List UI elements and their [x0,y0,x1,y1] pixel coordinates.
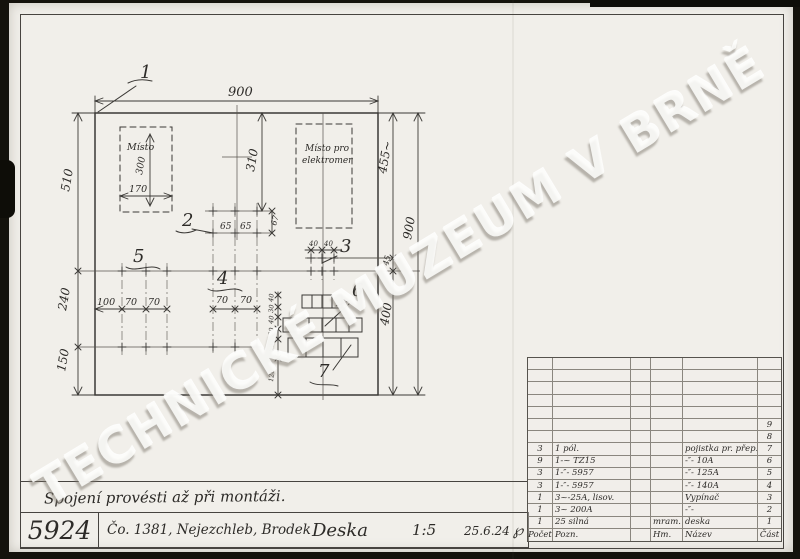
scanned-technical-drawing: { "watermark": "TECHNICKÉ MUZEUM V BRNĚ"… [0,0,800,559]
part-label-1: 1 [140,62,151,83]
dim-g5-70b: 70 [148,297,160,308]
dim-right-900: 900 [400,215,418,240]
drawing-scale: 1:5 [412,521,464,539]
dim-g5-100: 100 [97,297,115,308]
dim-g2-65b: 65 [240,222,252,232]
dim-vchain-60: 60 [267,343,276,352]
dim-misto-300: 300 [134,156,148,176]
title-block: 5924 Čo. 1381, Nejezchleb, Brodek Deska … [20,512,529,548]
table-row: 31 pól.pojistka pr. přep.7 [528,443,781,455]
part-label-4: 4 [216,268,228,289]
terminal-strips [283,295,362,357]
dim-vchain-30a: 30 [267,304,276,313]
order-info: Čo. 1381, Nejezchleb, Brodek [99,522,312,538]
table-row: 125 silnámram.deska1 [528,517,781,529]
drawing-number: 5924 [21,513,99,547]
elektromer-text: elektromer [302,156,353,166]
dim-g5-70a: 70 [125,297,137,308]
misto-pro-text: Místo pro [304,143,350,154]
table-row: 8 [528,431,781,443]
dim-g2-65a: 65 [220,222,232,232]
part-label-5: 5 [133,246,144,267]
dim-vchain-30b: 30 [267,327,276,336]
table-row: 13~-25A, lisov.Vypínač3 [528,492,781,504]
dim-g3-40a: 40 [308,240,318,248]
dim-vchain-120: 120 [267,369,276,382]
elektromer-area-box [296,124,352,228]
dim-left-240: 240 [55,286,73,312]
dim-right-400: 400 [377,301,395,327]
part-label-3: 3 [340,236,351,257]
table-row: 31-″- 5957-″- 140A4 [528,480,781,492]
dim-g3-40b: 40 [323,240,333,248]
date-value: 25.6.24 [464,524,510,538]
misto-text: Místo [126,142,154,153]
dim-top-900: 900 [228,85,253,100]
part-label-6: 6 [352,280,363,301]
table-row: 13~ 200A-″-2 [528,504,781,516]
table-row [528,370,781,382]
drawing-date: 25.6.24℘ [464,521,528,539]
dim-mid-310: 310 [243,147,261,172]
dim-g2-67: 67 [269,213,281,226]
dim-misto-170: 170 [129,184,147,195]
dim-left-150: 150 [54,347,72,372]
part-label-7: 7 [318,361,330,382]
dim-right-45: 45 [381,254,393,267]
part-name: Deska [312,520,412,541]
table-row [528,395,781,407]
table-row [528,358,781,370]
assembly-note-strip: Spojení provésti až při montáži. [20,481,527,513]
table-header-row: PočetPozn.Hm.NázevČást [528,529,781,541]
table-row: 91-~ TZ15-″- 10A6 [528,456,781,468]
parts-table: 9 8 31 pól.pojistka pr. přep.7 91-~ TZ15… [527,357,782,542]
dim-left-510: 510 [58,167,76,192]
dim-g4-70b: 70 [240,295,252,306]
signature-mark: ℘ [513,521,523,539]
dim-g4-70a: 70 [216,295,228,306]
dimension-lines [72,96,425,398]
dim-vchain-40b: 40 [267,315,276,325]
table-row [528,407,781,419]
table-row: 31-″- 5957-″- 125A5 [528,468,781,480]
table-row: 9 [528,419,781,431]
assembly-note: Spojení provésti až při montáži. [44,484,527,507]
part-label-2: 2 [181,210,193,231]
dim-vchain-40a: 40 [267,293,276,303]
table-row [528,382,781,394]
